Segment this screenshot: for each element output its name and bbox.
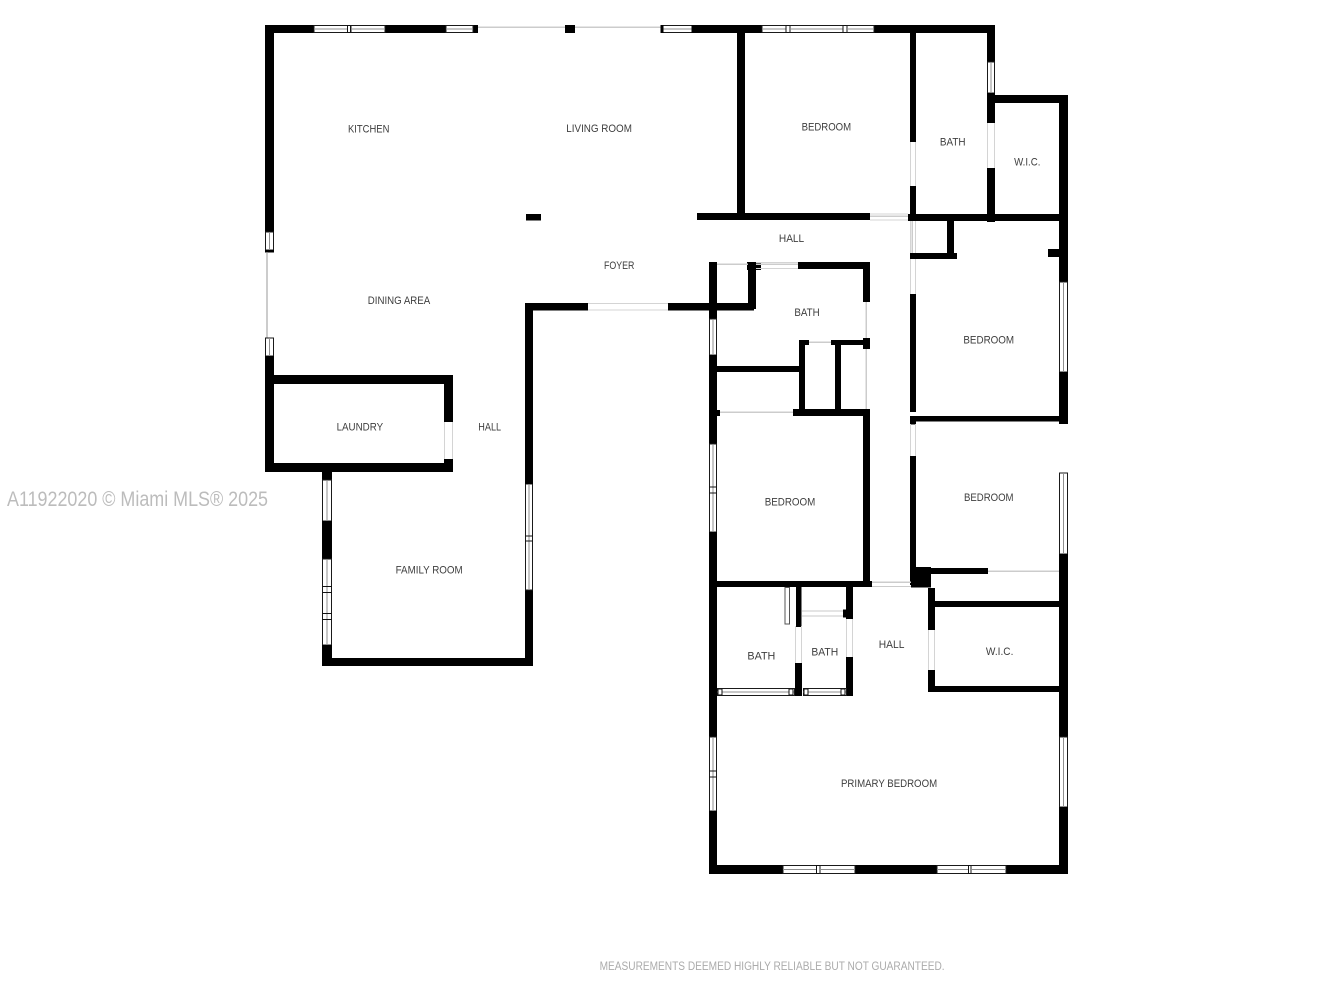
svg-text:HALL: HALL [478, 421, 501, 433]
svg-text:A11922020 © Miami MLS® 2025: A11922020 © Miami MLS® 2025 [7, 487, 268, 511]
svg-text:BEDROOM: BEDROOM [964, 492, 1014, 504]
svg-text:LAUNDRY: LAUNDRY [337, 421, 384, 433]
svg-text:BEDROOM: BEDROOM [765, 496, 816, 508]
svg-text:BATH: BATH [940, 136, 966, 148]
svg-text:MEASUREMENTS DEEMED HIGHLY REL: MEASUREMENTS DEEMED HIGHLY RELIABLE BUT … [600, 959, 945, 973]
svg-text:LIVING ROOM: LIVING ROOM [566, 123, 632, 135]
svg-text:FOYER: FOYER [604, 260, 634, 272]
svg-text:BEDROOM: BEDROOM [963, 335, 1014, 347]
svg-text:PRIMARY BEDROOM: PRIMARY BEDROOM [841, 778, 937, 790]
svg-text:HALL: HALL [879, 639, 905, 651]
svg-text:W.I.C.: W.I.C. [1014, 156, 1040, 168]
svg-text:BATH: BATH [794, 307, 819, 319]
svg-text:HALL: HALL [779, 233, 804, 245]
svg-text:BEDROOM: BEDROOM [802, 121, 852, 133]
svg-text:KITCHEN: KITCHEN [348, 123, 389, 135]
svg-text:BATH: BATH [747, 650, 775, 662]
svg-text:FAMILY ROOM: FAMILY ROOM [396, 565, 463, 577]
svg-text:DINING AREA: DINING AREA [368, 295, 431, 307]
svg-text:BATH: BATH [811, 647, 838, 659]
svg-text:W.I.C.: W.I.C. [986, 646, 1014, 658]
